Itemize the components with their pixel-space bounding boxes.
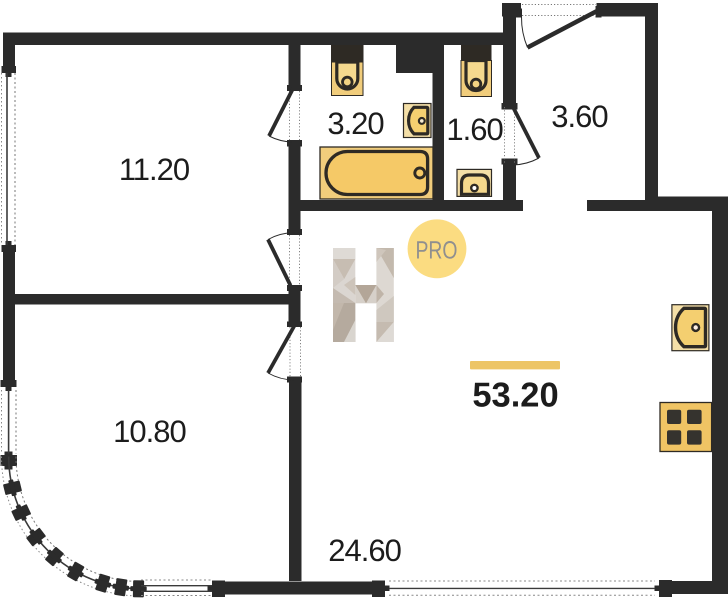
svg-text:10.80: 10.80: [113, 414, 186, 449]
svg-text:11.20: 11.20: [119, 152, 190, 187]
svg-text:3.20: 3.20: [327, 106, 384, 141]
svg-text:1.60: 1.60: [446, 112, 503, 147]
svg-text:3.60: 3.60: [551, 99, 608, 134]
svg-text:53.20: 53.20: [472, 377, 558, 415]
svg-text:PRO: PRO: [416, 236, 458, 264]
svg-text:24.60: 24.60: [328, 533, 401, 568]
